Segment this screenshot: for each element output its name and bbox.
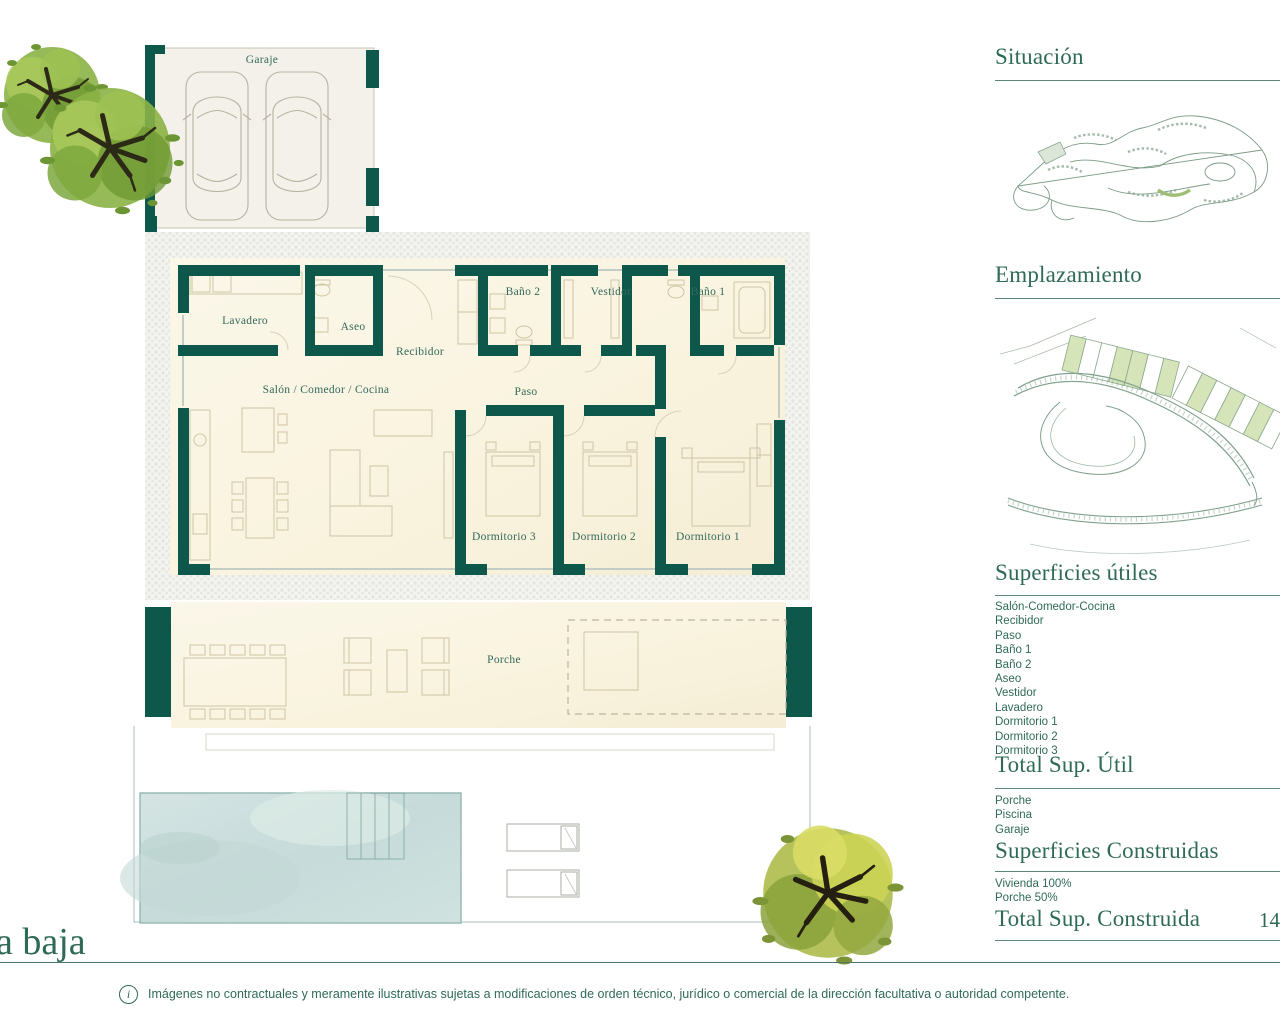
list-item: Baño 2 <box>995 658 1115 672</box>
tree-icon <box>752 826 903 965</box>
list-item: Dormitorio 2 <box>995 730 1115 744</box>
total-construida-value: 14 <box>1259 908 1280 933</box>
garden-area <box>120 726 810 923</box>
garage-area <box>145 45 379 232</box>
list-item: Salón-Comedor-Cocina <box>995 600 1115 614</box>
emplazamiento-heading: Emplazamiento <box>995 262 1142 288</box>
room-label-porche: Porche <box>487 654 521 666</box>
room-label-salon: Salón / Comedor / Cocina <box>263 384 390 396</box>
list-item: Aseo <box>995 672 1115 686</box>
total-construida-rule <box>995 940 1280 941</box>
room-label-paso: Paso <box>515 386 538 398</box>
sun-lounger-icon <box>507 824 579 897</box>
superficies-utiles-heading: Superficies útiles <box>995 560 1158 586</box>
list-item: Baño 1 <box>995 643 1115 657</box>
list-item: Garaje <box>995 823 1032 837</box>
room-label-bano2: Baño 2 <box>506 286 541 298</box>
room-label-vestidor: Vestidor <box>591 286 632 298</box>
room-label-recibidor: Recibidor <box>396 346 444 358</box>
floor-plan-drawing <box>0 0 960 975</box>
room-label-lavadero: Lavadero <box>222 315 268 327</box>
total-util-heading: Total Sup. Útil <box>995 752 1134 778</box>
emplazamiento-rule <box>995 298 1280 299</box>
situacion-heading: Situación <box>995 44 1084 70</box>
situacion-rule <box>995 80 1280 81</box>
room-label-bano1: Baño 1 <box>691 286 726 298</box>
room-label-garaje: Garaje <box>246 54 278 66</box>
situacion-map <box>1008 92 1280 250</box>
superficies-construidas-heading: Superficies Construidas <box>995 838 1219 864</box>
footer-disclaimer: Imágenes no contractuales y meramente il… <box>148 987 1208 1001</box>
plan-title: a baja <box>0 920 86 964</box>
brochure-page: Garaje Lavadero Aseo Recibidor Salón / C… <box>0 0 1280 1024</box>
total-construida-heading: Total Sup. Construida <box>995 906 1200 932</box>
room-label-dormitorio1: Dormitorio 1 <box>676 531 740 543</box>
list-item: Piscina <box>995 808 1032 822</box>
total-util-rule <box>995 788 1280 789</box>
superficies-construidas-rule <box>995 871 1280 872</box>
list-item: Vestidor <box>995 686 1115 700</box>
emplazamiento-map <box>1000 308 1280 560</box>
info-icon: i <box>119 985 138 1004</box>
porch-area <box>145 602 812 750</box>
total-util-list: Porche Piscina Garaje <box>995 794 1032 837</box>
list-item: Vivienda 100% <box>995 877 1072 891</box>
room-label-aseo: Aseo <box>341 321 366 333</box>
plan-title-rule <box>0 962 1280 963</box>
list-item: Porche <box>995 794 1032 808</box>
list-item: Porche 50% <box>995 891 1072 905</box>
list-item: Paso <box>995 629 1115 643</box>
pool <box>120 790 461 923</box>
superficies-utiles-rule <box>995 595 1280 596</box>
superficies-utiles-list: Salón-Comedor-Cocina Recibidor Paso Baño… <box>995 600 1115 758</box>
list-item: Dormitorio 1 <box>995 715 1115 729</box>
superficies-construidas-list: Vivienda 100% Porche 50% <box>995 877 1072 906</box>
list-item: Lavadero <box>995 701 1115 715</box>
room-label-dormitorio3: Dormitorio 3 <box>472 531 536 543</box>
list-item: Recibidor <box>995 614 1115 628</box>
room-label-dormitorio2: Dormitorio 2 <box>572 531 636 543</box>
